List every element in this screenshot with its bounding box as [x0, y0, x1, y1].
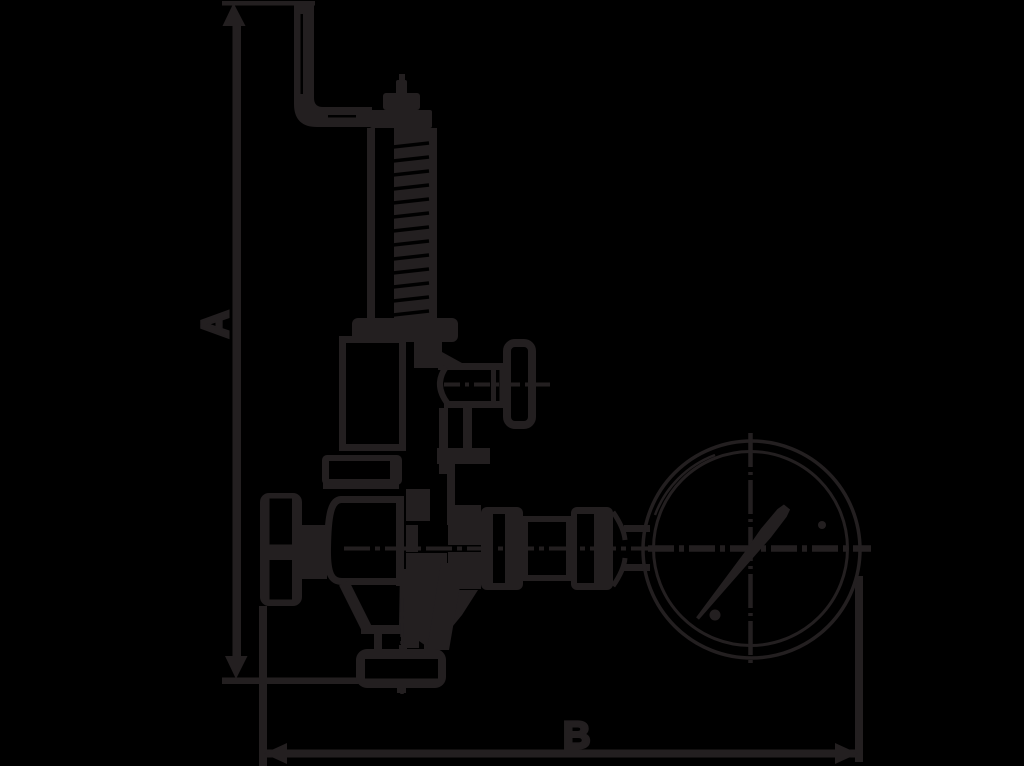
svg-text:A: A [195, 311, 237, 338]
svg-text:B: B [563, 715, 590, 757]
